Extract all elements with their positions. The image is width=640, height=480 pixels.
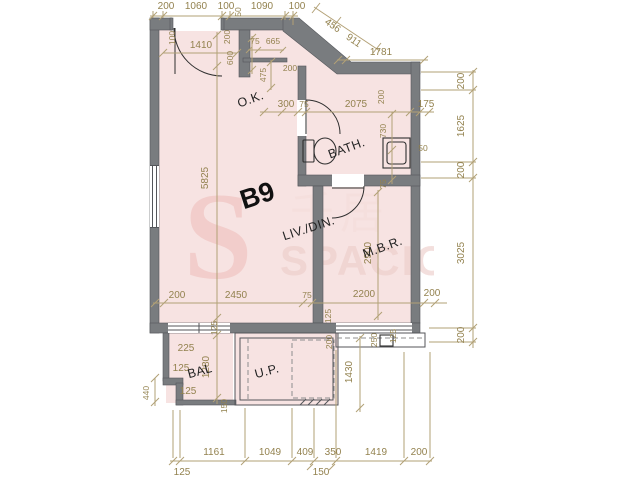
dim-bath-175: 175	[418, 99, 435, 110]
floorplan-svg: S 千居 SPACIOUS	[0, 0, 640, 480]
dim-utility-1430: 1430	[344, 360, 355, 383]
dim-living-200l: 200	[169, 290, 186, 301]
dim-corridor-300: 300	[278, 99, 295, 110]
wall-balcony-left	[163, 333, 169, 381]
dim-balcony-150: 150	[219, 399, 229, 413]
dim-diag-456: 456	[322, 17, 342, 36]
dim-living-125a: 125	[209, 321, 219, 335]
dim-corridor-200: 200	[283, 63, 297, 73]
dim-entry-100: 100	[167, 31, 177, 45]
utility-floor	[235, 333, 338, 405]
entry-jamb-right	[221, 18, 224, 30]
wall-master-left	[313, 186, 323, 323]
dim-diag-911: 911	[344, 32, 364, 50]
dim-right-1: 1625	[456, 114, 467, 137]
dim-corridor-75: 75	[299, 99, 309, 109]
dim-right-2: 200	[456, 161, 467, 178]
dim-bath-50: 50	[418, 143, 428, 153]
dim-top-0: 200	[158, 1, 175, 12]
dim-living-5825: 5825	[200, 166, 211, 189]
dim-right-3: 3025	[456, 241, 467, 264]
dim-niche-75: 75	[250, 36, 260, 46]
dim-top-1: 1060	[185, 1, 208, 12]
dim-bottom-1419: 1419	[365, 447, 388, 458]
window-left	[150, 165, 159, 228]
entry-door-gap	[172, 17, 222, 31]
dim-top-4: 100	[289, 1, 306, 12]
dim-balcony-225: 225	[178, 343, 195, 354]
dim-right-4: 200	[456, 326, 467, 343]
dim-utility-125: 125	[388, 329, 398, 343]
dim-bottom-125: 125	[174, 467, 191, 478]
dim-bottom-350: 350	[325, 447, 342, 458]
dim-bottom-150: 150	[313, 467, 330, 478]
dim-living-200r: 200	[424, 288, 441, 299]
dim-top-3: 1090	[251, 1, 274, 12]
wall-stub-entry	[239, 30, 250, 77]
dim-balcony-440: 440	[141, 386, 151, 400]
dim-1781: 1781	[370, 47, 393, 58]
dim-bottom-1161: 1161	[203, 447, 225, 458]
dim-entry-200: 200	[222, 30, 232, 44]
dim-bottom-409: 409	[297, 447, 314, 458]
dim-bath-200: 200	[376, 90, 386, 104]
dim-living-2450: 2450	[225, 290, 248, 301]
dim-living-75: 75	[302, 290, 312, 300]
dim-utility-250: 250	[369, 333, 379, 347]
dim-entry-50: 50	[233, 7, 243, 17]
window-master	[336, 323, 412, 333]
dim-corridor-475: 475	[258, 68, 268, 82]
dim-balcony-125b: 125	[180, 386, 197, 397]
dim-bath-730: 730	[378, 124, 388, 138]
dim-entry-1410: 1410	[190, 40, 213, 51]
dim-right-0: 200	[456, 72, 467, 89]
floorplan-canvas: S 千居 SPACIOUS	[0, 0, 640, 480]
dim-bath-2075: 2075	[345, 99, 368, 110]
ac-platform	[336, 333, 425, 347]
master-door-gap	[332, 174, 364, 187]
dim-living-125b: 125	[323, 309, 333, 323]
dim-utility-200: 200	[324, 335, 334, 349]
niche-sill	[243, 58, 287, 62]
dim-bath-75: 75	[378, 179, 388, 189]
dim-bottom-1049: 1049	[259, 447, 282, 458]
entry-jamb-left	[170, 18, 173, 30]
dim-entry-600: 600	[225, 51, 235, 65]
dim-living-2200: 2200	[353, 289, 376, 300]
dim-niche-665: 665	[266, 36, 280, 46]
dim-bottom-200: 200	[411, 447, 428, 458]
